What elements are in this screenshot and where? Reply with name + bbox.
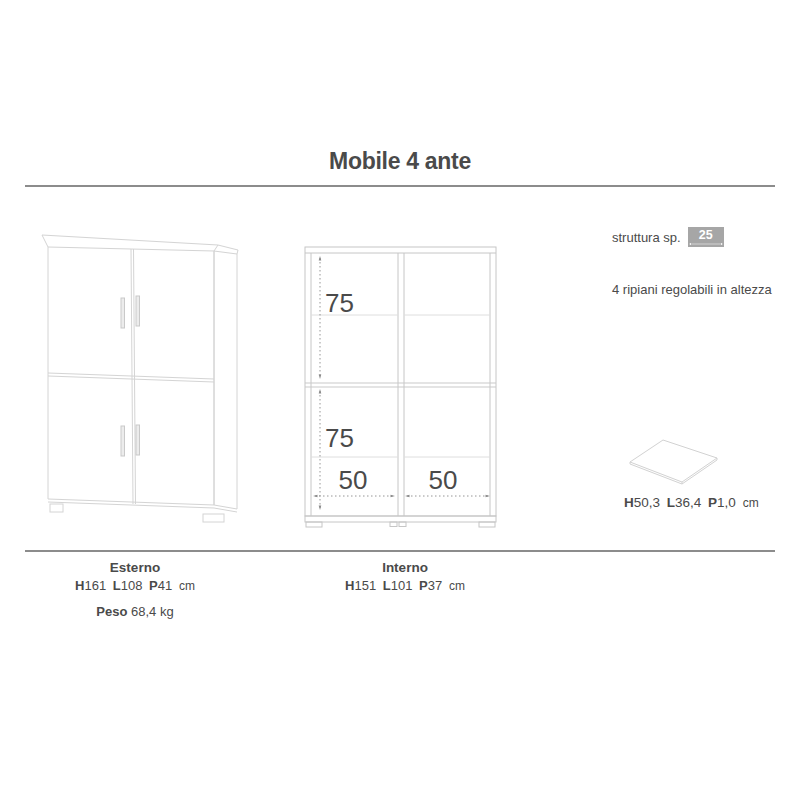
cabinet-door-split-horizontal: [48, 373, 214, 379]
shelf-panel-drawing: [618, 430, 730, 492]
front-view-base: [305, 516, 496, 522]
esterno-weight: Peso 68,4 kg: [50, 604, 220, 619]
interno-p-value: 37: [428, 578, 442, 593]
esterno-unit: cm: [179, 579, 195, 593]
shelf-dims-unit: cm: [743, 496, 759, 510]
peso-label: Peso: [96, 604, 127, 619]
front-view-foot: [479, 522, 495, 527]
esterno-h-label: H: [75, 578, 84, 593]
spec-sheet: Mobile 4 ante: [0, 0, 800, 800]
cabinet-foot-right: [203, 514, 224, 522]
left-width-value: 50: [339, 465, 368, 495]
esterno-dimensions: H161 L108 P41 cm: [50, 578, 220, 593]
cabinet-plinth-edge: [48, 502, 237, 512]
shelf-dimensions: H50,3 L36,4 P1,0 cm: [624, 495, 759, 510]
door-handle: [136, 296, 140, 326]
cabinet-foot-left: [50, 504, 63, 512]
esterno-block: Esterno H161 L108 P41 cm Peso 68,4 kg: [50, 560, 220, 619]
cabinet-outline: [42, 235, 238, 522]
interno-unit: cm: [449, 579, 465, 593]
interno-title: Interno: [320, 560, 490, 575]
ripiani-note: 4 ripiani regolabili in altezza: [612, 282, 772, 297]
interno-h-label: H: [345, 578, 354, 593]
shelf-p-value: 1,0: [717, 495, 736, 510]
upper-height-value: 75: [325, 288, 354, 318]
front-view-foot: [306, 522, 322, 527]
title-divider: [25, 185, 775, 187]
shelf-panel-top-face: [630, 440, 717, 482]
shelf-h-value: 50,3: [634, 495, 660, 510]
interno-dimensions: H151 L101 P37 cm: [320, 578, 490, 593]
shelf-l-label: L: [667, 495, 675, 510]
esterno-h-value: 161: [85, 578, 107, 593]
interno-l-label: L: [383, 578, 391, 593]
fixed-middle-shelf: [305, 383, 496, 387]
esterno-l-label: L: [113, 578, 121, 593]
interno-h-value: 151: [355, 578, 377, 593]
footer-divider: [25, 550, 775, 552]
cabinet-3d-drawing: [35, 228, 245, 530]
shelf-l-value: 36,4: [675, 495, 701, 510]
thickness-dim-arrow-icon: [688, 242, 724, 246]
esterno-l-value: 108: [121, 578, 143, 593]
page-title: Mobile 4 ante: [0, 148, 800, 175]
shelf-p-label: P: [708, 495, 717, 510]
esterno-p-value: 41: [158, 578, 172, 593]
door-handle: [121, 426, 125, 456]
esterno-p-label: P: [149, 578, 158, 593]
door-handle: [136, 425, 140, 455]
interno-l-value: 101: [391, 578, 413, 593]
door-handle: [121, 298, 125, 328]
cabinet-side-face: [214, 251, 237, 509]
right-width-value: 50: [429, 465, 458, 495]
struttura-row: struttura sp. 25 mm: [612, 227, 724, 247]
struttura-label: struttura sp.: [612, 230, 681, 245]
peso-value: 68,4 kg: [131, 604, 174, 619]
front-view-foot: [390, 522, 397, 527]
shelf-h-label: H: [624, 495, 634, 510]
esterno-title: Esterno: [50, 560, 220, 575]
front-view-drawing: 75 75 50 50: [298, 242, 504, 534]
lower-height-value: 75: [325, 423, 354, 453]
struttura-thickness-badge: 25 mm: [688, 227, 724, 247]
interno-block: Interno H151 L101 P37 cm: [320, 560, 490, 593]
front-view-foot: [399, 522, 406, 527]
interno-p-label: P: [419, 578, 428, 593]
